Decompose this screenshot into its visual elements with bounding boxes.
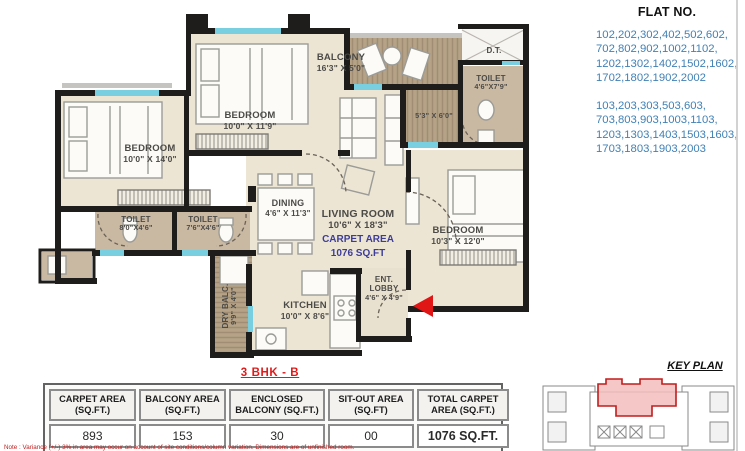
- carpet-area-line1: CARPET AREA: [312, 233, 404, 247]
- room-name: BEDROOM: [200, 110, 300, 121]
- label-ent-lobby: ENT. LOBBY 4'6" X 4'9": [360, 276, 408, 302]
- room-dims: 10'0" X 8'6": [265, 311, 345, 321]
- label-bedroom-middle: BEDROOM 10'0" X 11'9": [200, 110, 300, 131]
- room-name: BALCONY: [301, 52, 381, 63]
- label-duct: D.T.: [474, 46, 514, 55]
- room-dims: 4'6" X 11'3": [257, 209, 319, 218]
- room-dims: 10'6" X 18'3": [312, 220, 404, 231]
- room-dims: 9'9" X 4'0": [230, 260, 239, 352]
- label-toilet-2: TOILET 7'6"X4'6": [172, 215, 234, 233]
- room-name: DINING: [257, 198, 319, 209]
- label-bedroom-left: BEDROOM 10'0" X 14'0": [100, 143, 200, 164]
- carpet-area-label: CARPET AREA 1076 SQ.FT: [312, 233, 404, 260]
- header-balcony-area: BALCONY AREA (SQ.FT.): [139, 389, 226, 421]
- label-kitchen: KITCHEN 10'0" X 8'6": [265, 300, 345, 321]
- flat-no-group-2: 103,203,303,503,603, 703,803,903,1003,11…: [596, 99, 742, 157]
- label-dry-balcony: DRY BALC. 9'9" X 4'0": [221, 260, 239, 352]
- flat-number-panel: FLAT NO. 102,202,302,402,502,602, 702,80…: [592, 5, 742, 170]
- flat-no-group-1: 102,202,302,402,502,602, 702,802,902,100…: [596, 28, 742, 86]
- area-table-header-row: CARPET AREA (SQ.FT.) BALCONY AREA (SQ.FT…: [49, 389, 509, 421]
- carpet-area-line2: 1076 SQ.FT: [312, 247, 404, 261]
- label-balcony: BALCONY 16'3" X 5'0": [301, 52, 381, 73]
- disclaimer-note: Note : Variance (+/-) 3% in area may occ…: [4, 444, 524, 451]
- label-living-room: LIVING ROOM 10'6" X 18'3": [312, 208, 404, 232]
- room-dims: 5'3" X 6'0": [404, 112, 464, 121]
- room-dims: 16'3" X 5'0": [301, 63, 381, 73]
- plan-title: 3 BHK - B: [43, 367, 497, 379]
- label-toilet-1: TOILET 8'0"X4'6": [104, 215, 168, 233]
- page-edge-divider: [736, 0, 738, 451]
- flat-no-title: FLAT NO.: [592, 5, 742, 19]
- room-dims: 7'6"X4'6": [172, 224, 234, 233]
- key-plan-drawing: [543, 379, 734, 450]
- label-enclosed-balcony: 5'3" X 6'0": [404, 112, 464, 121]
- room-name: BEDROOM: [100, 143, 200, 154]
- room-dims: 4'6" X 4'9": [360, 294, 408, 302]
- floor-plan-page: BEDROOM 10'0" X 14'0" BEDROOM 10'0" X 11…: [0, 0, 745, 451]
- room-dims: 4'6"X7'9": [462, 83, 520, 92]
- room-name: D.T.: [474, 46, 514, 55]
- area-table: CARPET AREA (SQ.FT.) BALCONY AREA (SQ.FT…: [43, 383, 503, 451]
- label-dining: DINING 4'6" X 11'3": [257, 198, 319, 218]
- header-sit-out-area: SIT-OUT AREA (SQ.FT): [328, 389, 414, 421]
- key-plan-title: KEY PLAN: [652, 360, 738, 372]
- room-dims: 8'0"X4'6": [104, 224, 168, 233]
- room-dims: 10'3" X 12'0": [418, 236, 498, 246]
- header-carpet-area: CARPET AREA (SQ.FT.): [49, 389, 136, 421]
- header-total-carpet-area: TOTAL CARPET AREA (SQ.FT.): [417, 389, 509, 421]
- room-name: LIVING ROOM: [312, 208, 404, 220]
- room-dims: 10'0" X 14'0": [100, 154, 200, 164]
- room-name: BEDROOM: [418, 225, 498, 236]
- label-bedroom-right: BEDROOM 10'3" X 12'0": [418, 225, 498, 246]
- header-enclosed-balcony: ENCLOSED BALCONY (SQ.FT.): [229, 389, 325, 421]
- room-dims: 10'0" X 11'9": [200, 121, 300, 131]
- room-name: KITCHEN: [265, 300, 345, 311]
- label-toilet-top: TOILET 4'6"X7'9": [462, 74, 520, 92]
